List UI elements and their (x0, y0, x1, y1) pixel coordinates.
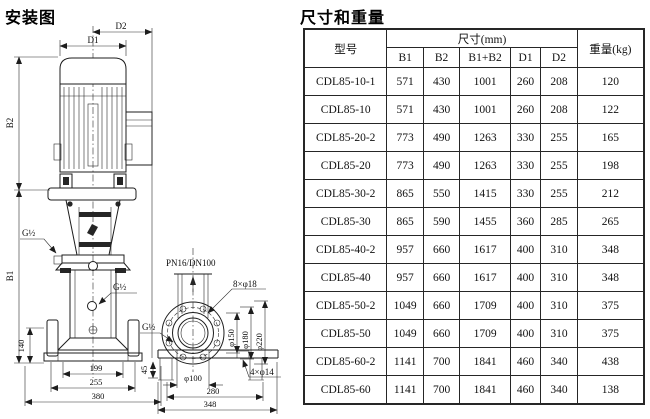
value-cell: 490 (423, 152, 459, 180)
table-row: CDL85-20-27734901263330255165 (304, 124, 644, 152)
value-cell: 310 (541, 292, 577, 320)
vent-plug (88, 302, 97, 311)
value-cell: 330 (510, 152, 540, 180)
model-cell: CDL85-20 (304, 152, 387, 180)
value-cell: 310 (541, 236, 577, 264)
model-cell: CDL85-40 (304, 264, 387, 292)
col-header-b2: B2 (423, 48, 459, 68)
value-cell: 460 (510, 348, 540, 376)
table-row: CDL85-10-15714301001260208120 (304, 68, 644, 96)
value-cell: 1841 (460, 376, 511, 405)
value-cell: 208 (541, 96, 577, 124)
value-cell: 571 (387, 96, 423, 124)
col-header-b1b2: B1+B2 (460, 48, 511, 68)
value-cell: 120 (577, 68, 644, 96)
value-cell: 208 (541, 68, 577, 96)
table-row: CDL85-30-28655501415330255212 (304, 180, 644, 208)
table-row: CDL85-50-210496601709400310375 (304, 292, 644, 320)
dim-label-d1: D1 (88, 35, 99, 45)
value-cell: 348 (577, 236, 644, 264)
value-cell: 1049 (387, 292, 423, 320)
value-cell: 1617 (460, 236, 511, 264)
coupling-guard (87, 224, 98, 236)
value-cell: 1415 (460, 180, 511, 208)
table-body: CDL85-10-15714301001260208120CDL85-10571… (304, 68, 644, 405)
value-cell: 1001 (460, 68, 511, 96)
value-cell: 773 (387, 124, 423, 152)
dim-label-b2: B2 (5, 118, 15, 129)
value-cell: 1709 (460, 320, 511, 348)
table-row: CDL85-409576601617400310348 (304, 264, 644, 292)
value-cell: 773 (387, 152, 423, 180)
value-cell: 212 (577, 180, 644, 208)
value-cell: 340 (541, 376, 577, 405)
value-cell: 260 (510, 68, 540, 96)
value-cell: 260 (510, 96, 540, 124)
flange-spec-label: PN16/DN100 (166, 258, 216, 268)
dim-label-348: 348 (204, 399, 217, 409)
value-cell: 340 (541, 348, 577, 376)
table-row: CDL85-6011417001841460340138 (304, 376, 644, 405)
model-cell: CDL85-10-1 (304, 68, 387, 96)
table-row: CDL85-207734901263330255198 (304, 152, 644, 180)
value-cell: 660 (423, 320, 459, 348)
value-cell: 348 (577, 264, 644, 292)
value-cell: 430 (423, 96, 459, 124)
value-cell: 430 (423, 68, 459, 96)
value-cell: 660 (423, 264, 459, 292)
flow-arrow (190, 276, 196, 285)
value-cell: 660 (423, 292, 459, 320)
catalog-page: 安装图 (0, 0, 650, 419)
value-cell: 957 (387, 264, 423, 292)
value-cell: 310 (541, 264, 577, 292)
port-label-g-half-mid: G½ (113, 282, 126, 292)
value-cell: 1049 (387, 320, 423, 348)
value-cell: 1709 (460, 292, 511, 320)
value-cell: 1617 (460, 264, 511, 292)
model-cell: CDL85-10 (304, 96, 387, 124)
value-cell: 138 (577, 376, 644, 405)
value-cell: 957 (387, 236, 423, 264)
value-cell: 1263 (460, 124, 511, 152)
value-cell: 198 (577, 152, 644, 180)
pump-front-view (44, 26, 152, 378)
table-row: CDL85-308655901455360285265 (304, 208, 644, 236)
value-cell: 265 (577, 208, 644, 236)
col-header-size-group: 尺寸(mm) (387, 29, 577, 48)
dim-label-phi180: φ180 (240, 331, 250, 349)
port-label-g-half-side: G½ (142, 322, 155, 332)
support-plate-left (47, 320, 58, 356)
dimensions-table-title: 尺寸和重量 (300, 4, 385, 28)
anchor-holes-label: 4×φ14 (250, 367, 274, 377)
value-cell: 285 (541, 208, 577, 236)
motor-flange (48, 188, 136, 200)
dimensions-table: 型号 尺寸(mm) 重量(kg) B1 B2 B1+B2 D1 D2 CDL85… (303, 28, 645, 405)
value-cell: 255 (541, 124, 577, 152)
value-cell: 700 (423, 376, 459, 405)
model-cell: CDL85-30 (304, 208, 387, 236)
dim-label-280: 280 (207, 386, 220, 396)
value-cell: 550 (423, 180, 459, 208)
value-cell: 700 (423, 348, 459, 376)
dim-label-phi220: φ220 (254, 333, 264, 351)
value-cell: 438 (577, 348, 644, 376)
dim-label-45: 45 (139, 366, 149, 375)
model-cell: CDL85-20-2 (304, 124, 387, 152)
value-cell: 460 (510, 376, 540, 405)
model-cell: CDL85-50-2 (304, 292, 387, 320)
value-cell: 400 (510, 264, 540, 292)
value-cell: 122 (577, 96, 644, 124)
col-header-model: 型号 (304, 29, 387, 68)
installation-diagram: D1 D2 B2 B1 140 199 255 (0, 0, 300, 419)
value-cell: 1263 (460, 152, 511, 180)
support-plate-right (128, 320, 139, 356)
dim-label-140: 140 (16, 340, 26, 353)
head-port-center (89, 262, 98, 271)
value-cell: 1001 (460, 96, 511, 124)
value-cell: 865 (387, 208, 423, 236)
dim-label-d2: D2 (116, 21, 127, 31)
col-header-d1: D1 (510, 48, 540, 68)
value-cell: 571 (387, 68, 423, 96)
dim-label-phi100: φ100 (184, 373, 202, 383)
model-cell: CDL85-50 (304, 320, 387, 348)
value-cell: 865 (387, 180, 423, 208)
value-cell: 1455 (460, 208, 511, 236)
col-header-d2: D2 (541, 48, 577, 68)
value-cell: 310 (541, 320, 577, 348)
value-cell: 255 (541, 180, 577, 208)
anchor-slot (237, 351, 249, 358)
table-row: CDL85-105714301001260208122 (304, 96, 644, 124)
model-cell: CDL85-40-2 (304, 236, 387, 264)
motor-fan-cover (60, 58, 126, 84)
value-cell: 1141 (387, 348, 423, 376)
head-port-left (54, 256, 62, 264)
model-cell: CDL85-60 (304, 376, 387, 405)
dim-label-b1: B1 (5, 271, 15, 282)
value-cell: 330 (510, 124, 540, 152)
base-feet (158, 358, 264, 380)
value-cell: 255 (541, 152, 577, 180)
table-row: CDL85-40-29576601617400310348 (304, 236, 644, 264)
table-row: CDL85-60-211417001841460340438 (304, 348, 644, 376)
value-cell: 490 (423, 124, 459, 152)
dim-label-phi150: φ150 (226, 329, 236, 347)
value-cell: 330 (510, 180, 540, 208)
bolt-holes-label: 8×φ18 (233, 279, 257, 289)
dim-label-199: 199 (90, 363, 103, 373)
col-header-b1: B1 (387, 48, 423, 68)
col-header-weight: 重量(kg) (577, 29, 644, 68)
port-label-g-half-left: G½ (22, 228, 35, 238)
model-cell: CDL85-30-2 (304, 180, 387, 208)
dim-label-255: 255 (90, 377, 103, 387)
value-cell: 400 (510, 292, 540, 320)
value-cell: 400 (510, 236, 540, 264)
side-view-dimensions: PN16/DN100 8×φ18 G½ φ150 φ180 φ220 4×φ14… (139, 258, 281, 414)
value-cell: 1841 (460, 348, 511, 376)
dim-label-380: 380 (92, 391, 105, 401)
value-cell: 1141 (387, 376, 423, 405)
value-cell: 360 (510, 208, 540, 236)
value-cell: 400 (510, 320, 540, 348)
value-cell: 660 (423, 236, 459, 264)
table-row: CDL85-5010496601709400310375 (304, 320, 644, 348)
value-cell: 165 (577, 124, 644, 152)
value-cell: 590 (423, 208, 459, 236)
dimensions-table-wrap: 型号 尺寸(mm) 重量(kg) B1 B2 B1+B2 D1 D2 CDL85… (297, 28, 647, 405)
model-cell: CDL85-60-2 (304, 348, 387, 376)
value-cell: 375 (577, 320, 644, 348)
value-cell: 375 (577, 292, 644, 320)
